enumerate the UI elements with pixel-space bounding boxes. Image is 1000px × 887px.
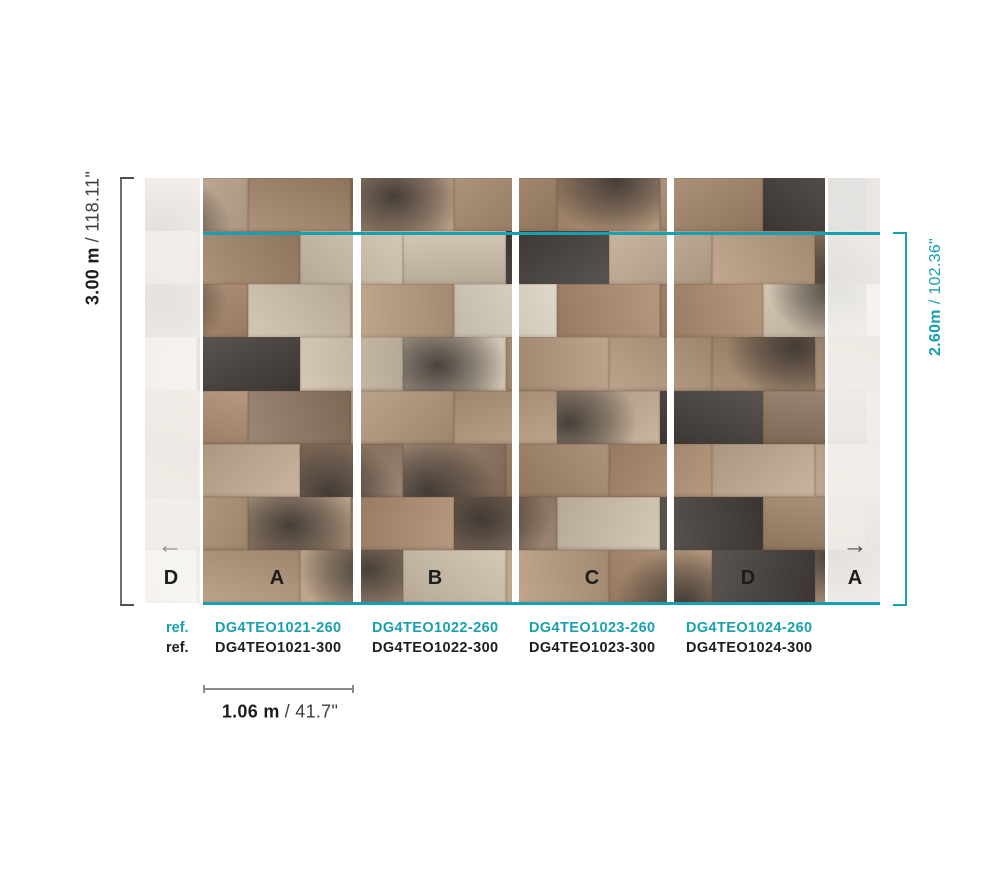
ref-code-300-4: DG4TEO1024-300 xyxy=(686,640,813,656)
mural-tile xyxy=(557,178,660,232)
mural-tile xyxy=(197,444,300,498)
arrow-left-icon: ← xyxy=(150,533,190,558)
full-height-imperial: / 118.11" xyxy=(83,171,103,242)
trim-height-metric: 2.60m xyxy=(927,309,944,356)
mural-tile xyxy=(660,497,763,551)
mural-tile xyxy=(403,444,506,498)
panel-width-dimension-label: 1.06 m/ 41.7" xyxy=(222,702,338,723)
ref-code-300-1: DG4TEO1021-300 xyxy=(215,640,342,656)
mural-tile xyxy=(454,497,557,551)
mural-tile xyxy=(660,391,763,445)
mural-tile xyxy=(557,391,660,445)
ref-label-260: ref. xyxy=(166,620,189,636)
ref-code-260-3: DG4TEO1023-260 xyxy=(529,620,656,636)
mural-tile xyxy=(660,284,763,338)
mural-tile xyxy=(609,337,712,391)
mural-tile xyxy=(712,231,815,285)
panel-letter-d: D xyxy=(728,567,768,590)
mural-tile xyxy=(557,284,660,338)
mural-tile xyxy=(506,444,609,498)
ref-code-260-4: DG4TEO1024-260 xyxy=(686,620,813,636)
panel-width-imperial: / 41.7" xyxy=(285,702,339,722)
mural-tile xyxy=(300,231,403,285)
mural-tile xyxy=(351,284,454,338)
panel-gap xyxy=(667,178,674,603)
panel-width-line xyxy=(203,688,354,690)
mural-tile xyxy=(351,497,454,551)
mural-tile xyxy=(506,231,609,285)
mural-tile xyxy=(454,178,557,232)
mural-tile xyxy=(248,284,351,338)
trim-height-dimension-label: 2.60m/ 102.36" xyxy=(927,238,945,356)
panel-letter-b: B xyxy=(415,567,455,590)
height-bracket-line xyxy=(120,177,122,606)
mural-tile xyxy=(300,337,403,391)
full-height-dimension-label: 3.00 m/ 118.11" xyxy=(83,171,104,305)
mural-tile xyxy=(609,444,712,498)
trim-height-bottom-line xyxy=(203,602,880,605)
panel-width-tick-right xyxy=(352,685,354,693)
ref-code-300-2: DG4TEO1022-300 xyxy=(372,640,499,656)
mural-tile xyxy=(712,337,815,391)
mural-tile xyxy=(300,444,403,498)
arrow-right-icon: → xyxy=(835,533,875,558)
mural-tile xyxy=(403,231,506,285)
mural-tile xyxy=(248,178,351,232)
mural-tile xyxy=(454,391,557,445)
ref-code-260-2: DG4TEO1022-260 xyxy=(372,620,499,636)
ref-label-300: ref. xyxy=(166,640,189,656)
wallpaper-mural-preview xyxy=(145,178,880,603)
mural-tile xyxy=(351,391,454,445)
height-bracket-tick-bottom xyxy=(120,604,134,606)
mural-tile xyxy=(712,444,815,498)
mural-tile xyxy=(351,178,454,232)
mural-tile xyxy=(609,550,712,603)
panel-width-tick-left xyxy=(203,685,205,693)
mural-tile xyxy=(609,231,712,285)
mural-tile xyxy=(506,337,609,391)
panel-gap xyxy=(512,178,519,603)
mural-tile xyxy=(197,231,300,285)
mural-tile xyxy=(248,391,351,445)
height-bracket-tick-top xyxy=(120,177,134,179)
panel-gap xyxy=(200,178,203,603)
mural-tile xyxy=(660,178,763,232)
mural-tile xyxy=(557,497,660,551)
ref-code-260-1: DG4TEO1021-260 xyxy=(215,620,342,636)
panel-gap xyxy=(353,178,361,603)
trim-height-bracket-tick-top xyxy=(893,232,906,234)
mural-tile xyxy=(300,550,403,603)
panel-letter-a: A xyxy=(257,567,297,590)
trim-height-bracket-tick-bottom xyxy=(893,604,906,606)
panel-letter-a-right: A xyxy=(835,567,875,590)
mural-tile xyxy=(248,497,351,551)
mural-tile xyxy=(197,337,300,391)
full-height-metric: 3.00 m xyxy=(83,247,103,305)
panel-letter-c: C xyxy=(572,567,612,590)
mural-tile xyxy=(454,284,557,338)
trim-height-bracket-line xyxy=(905,232,907,606)
panel-width-metric: 1.06 m xyxy=(222,702,280,722)
trim-height-top-line xyxy=(203,232,880,235)
ref-code-300-3: DG4TEO1023-300 xyxy=(529,640,656,656)
trim-height-imperial: / 102.36" xyxy=(927,238,944,304)
mural-tile xyxy=(403,337,506,391)
panel-letter-d-left: D xyxy=(151,567,191,590)
